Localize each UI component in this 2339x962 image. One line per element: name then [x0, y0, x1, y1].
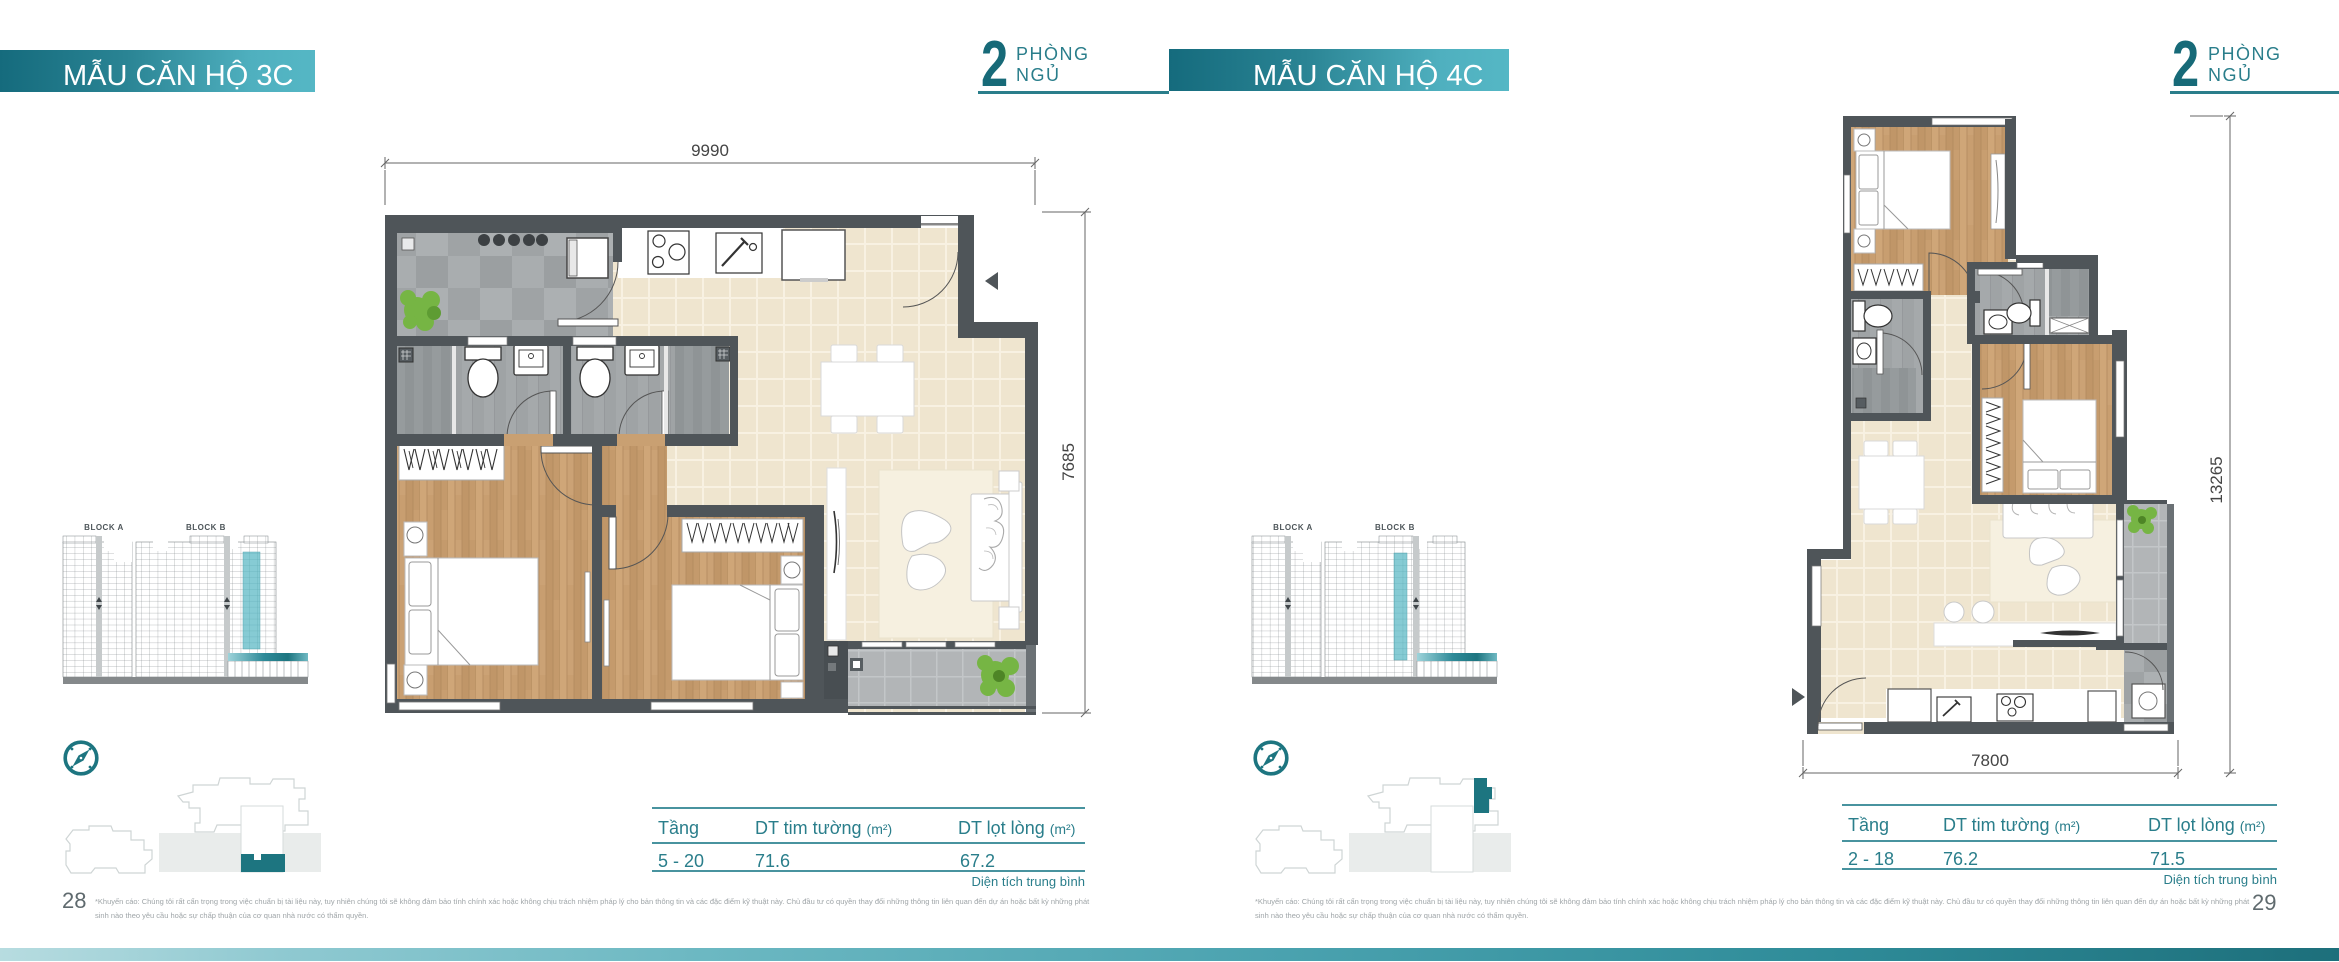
- svg-text:7685: 7685: [1059, 443, 1078, 481]
- svg-text:BLOCK A: BLOCK A: [84, 523, 124, 532]
- svg-text:BLOCK B: BLOCK B: [1375, 523, 1415, 532]
- svg-text:9990: 9990: [691, 141, 729, 160]
- svg-text:7800: 7800: [1971, 751, 2009, 770]
- svg-text:BLOCK B: BLOCK B: [186, 523, 226, 532]
- svg-text:13265: 13265: [2207, 456, 2226, 503]
- svg-text:BLOCK A: BLOCK A: [1273, 523, 1313, 532]
